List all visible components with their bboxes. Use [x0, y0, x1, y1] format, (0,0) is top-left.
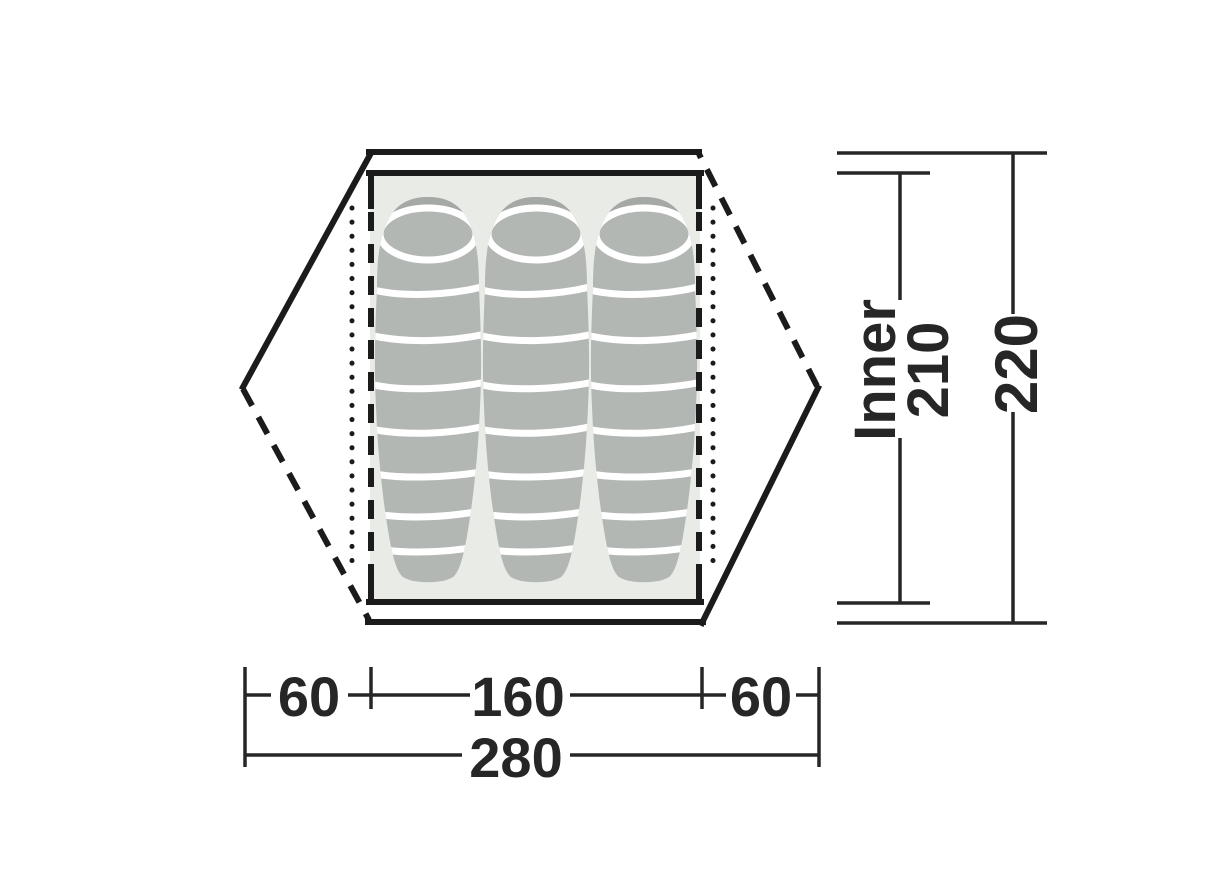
label-right-offset-value: 60: [730, 665, 792, 728]
diagram-canvas: Inner 210 220 60 160 60 280: [0, 0, 1230, 888]
sleeping-bag-figure: [370, 195, 486, 582]
fly-bottom-right-edge: [702, 388, 818, 623]
sleeping-bag-figure: [478, 195, 594, 582]
tent-dimension-diagram: Inner 210 220 60 160 60 280: [0, 0, 1230, 888]
label-outer-width-value: 280: [469, 726, 562, 789]
label-inner-length-value: 210: [896, 322, 961, 419]
fly-top-left-edge: [243, 153, 371, 387]
label-inner-width-value: 160: [471, 665, 564, 728]
fly-top-right-edge-dashed: [699, 154, 817, 386]
label-outer-length-value: 220: [983, 314, 1050, 414]
label-left-offset-value: 60: [278, 665, 340, 728]
sleeping-bag-figure: [586, 195, 702, 582]
